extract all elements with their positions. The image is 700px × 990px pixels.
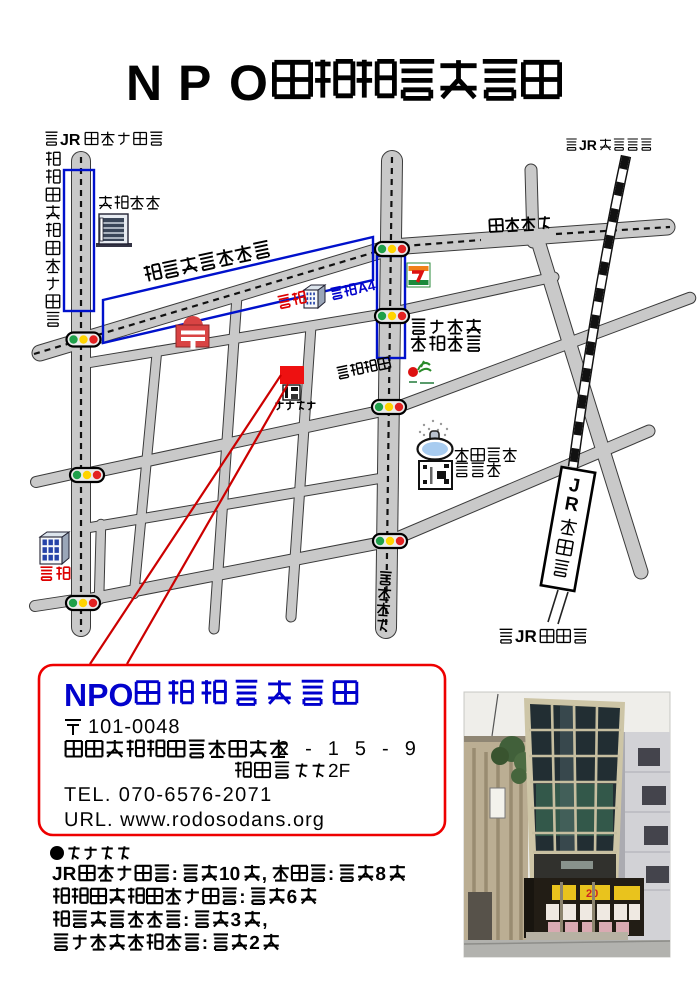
svg-text:JR: JR <box>515 627 537 646</box>
svg-text:10: 10 <box>219 864 240 885</box>
svg-text:JR: JR <box>60 132 81 149</box>
svg-text:NPO: NPO <box>64 677 133 713</box>
svg-text:,: , <box>262 864 267 885</box>
svg-text:O: O <box>229 55 268 111</box>
svg-text:,: , <box>262 910 267 931</box>
svg-text:2-15-9: 2-15-9 <box>278 738 432 760</box>
svg-text::: : <box>202 933 208 954</box>
svg-text:2F: 2F <box>328 761 350 782</box>
svg-text::: : <box>183 910 189 931</box>
svg-text:8: 8 <box>375 864 386 885</box>
svg-text:6: 6 <box>287 887 298 908</box>
svg-text:P: P <box>178 55 211 111</box>
svg-text:2: 2 <box>249 933 260 954</box>
svg-text:3: 3 <box>230 910 241 931</box>
svg-text:JR: JR <box>52 864 77 885</box>
svg-text:101-0048: 101-0048 <box>88 716 181 738</box>
svg-text::: : <box>172 864 178 885</box>
svg-text:TEL. 070-6576-2071: TEL. 070-6576-2071 <box>64 784 273 806</box>
svg-text::: : <box>328 864 334 885</box>
svg-text:JR: JR <box>579 137 597 153</box>
svg-text:URL. www.rodosodans.org: URL. www.rodosodans.org <box>64 809 325 831</box>
svg-text:N: N <box>126 55 162 111</box>
svg-text::: : <box>239 887 245 908</box>
